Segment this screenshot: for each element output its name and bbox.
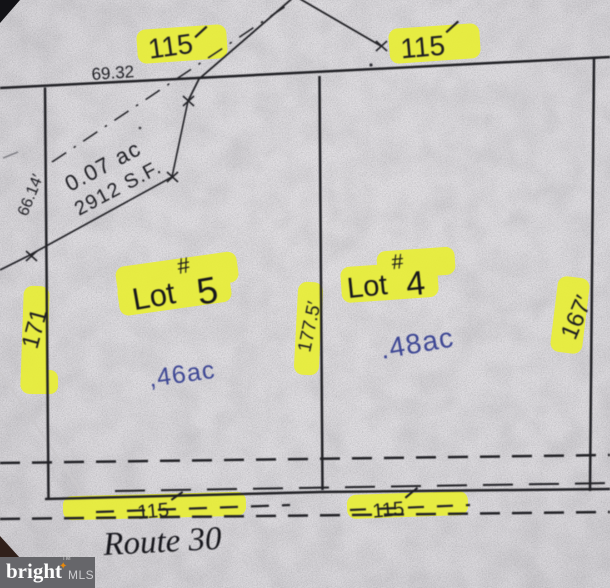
svg-text:115: 115 [136, 499, 170, 524]
svg-text:115: 115 [146, 28, 195, 65]
svg-text:4: 4 [404, 264, 427, 304]
svg-text:69.32: 69.32 [91, 62, 135, 84]
svg-text:Route 30: Route 30 [101, 521, 222, 563]
svg-text:Lot: Lot [345, 269, 388, 305]
svg-text:115: 115 [399, 30, 446, 65]
svg-text:115: 115 [371, 498, 405, 523]
svg-text:Lot: Lot [129, 275, 178, 317]
